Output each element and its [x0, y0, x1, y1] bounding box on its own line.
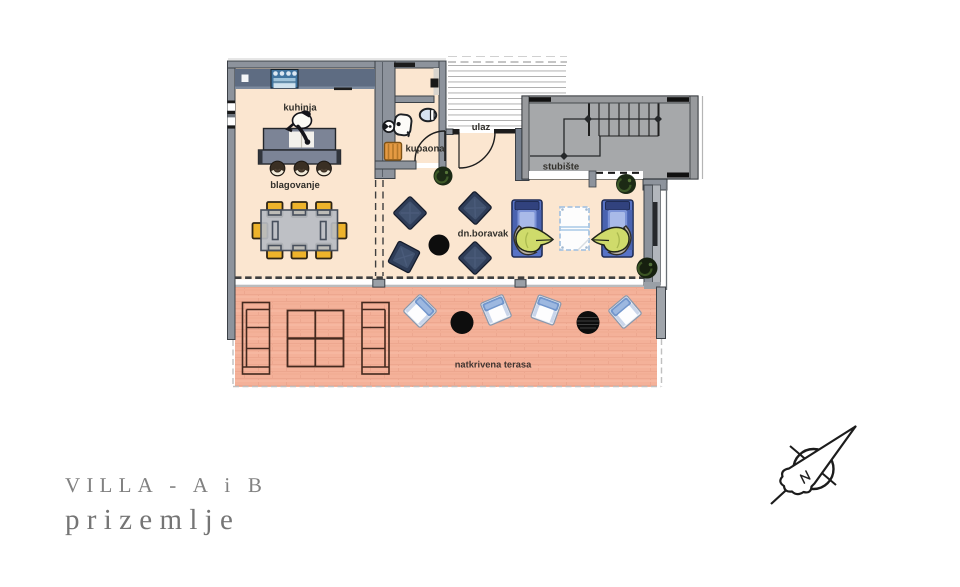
svg-text:dn.boravak: dn.boravak	[458, 229, 509, 240]
svg-text:kuhinja: kuhinja	[283, 103, 317, 114]
svg-text:stubište: stubište	[543, 162, 579, 173]
svg-text:kupaona: kupaona	[405, 144, 445, 155]
svg-text:VILLA - A i B: VILLA - A i B	[65, 473, 268, 497]
svg-text:ulaz: ulaz	[472, 122, 491, 133]
svg-text:natkrivena terasa: natkrivena terasa	[455, 360, 532, 370]
svg-text:blagovanje: blagovanje	[270, 180, 320, 191]
svg-text:prizemlje: prizemlje	[65, 504, 240, 536]
